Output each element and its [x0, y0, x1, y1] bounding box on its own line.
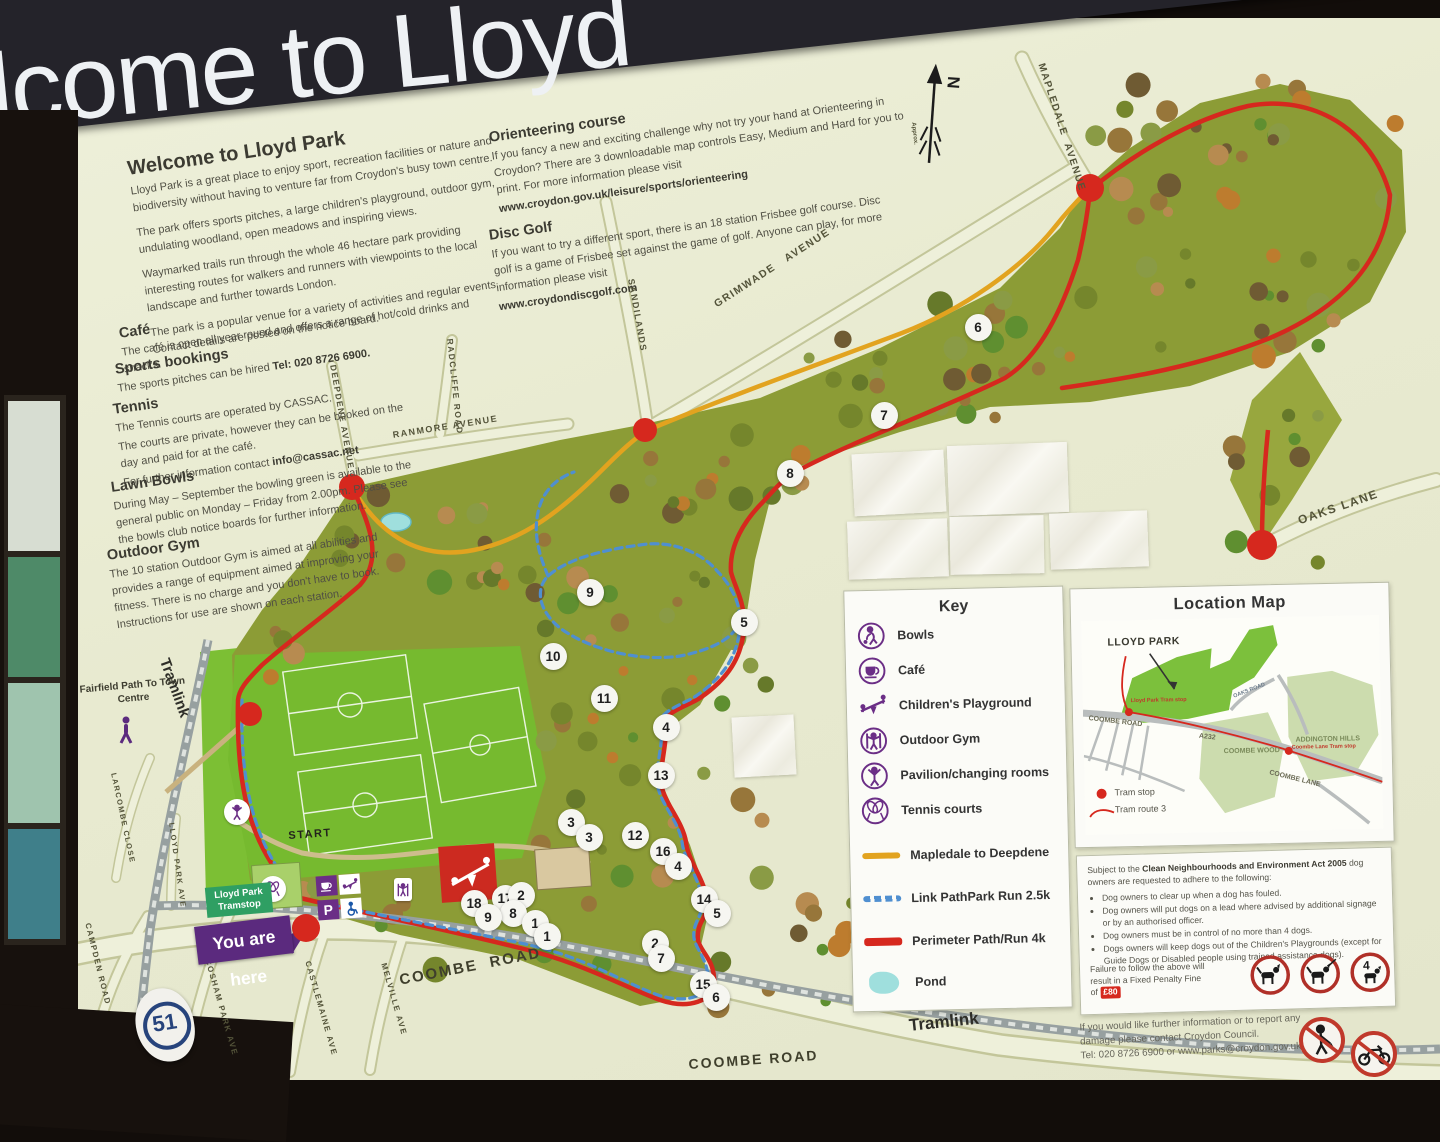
- key-item-pavilion: Pavilion/changing rooms: [848, 754, 1067, 794]
- fine-badge: £80: [1100, 986, 1121, 998]
- four-dogs-icon: 4: [1348, 950, 1393, 995]
- station-marker: 8: [777, 460, 804, 487]
- station-marker: 1: [534, 923, 561, 950]
- key-item-playground: Children's Playground: [846, 684, 1065, 724]
- label-north: N: [944, 76, 965, 90]
- dog-fine-text: Failure to follow the above will result …: [1090, 961, 1211, 999]
- location-map-title: Location Map: [1071, 591, 1389, 617]
- dog-sign-icons: 4: [1248, 950, 1393, 998]
- gym-icon: [859, 726, 890, 755]
- cafe-map-icon: [316, 875, 338, 896]
- dog-lead-icon: [1298, 951, 1343, 996]
- key-item-pond: Pond: [853, 960, 1072, 1000]
- no-motorcycles-icon: [1347, 1027, 1402, 1082]
- tennis-icon: [861, 796, 892, 825]
- station-marker: 10: [540, 643, 567, 670]
- key-item-gym: Outdoor Gym: [847, 719, 1066, 759]
- station-marker: 9: [577, 579, 604, 606]
- no-golf-icon: [1295, 1013, 1350, 1068]
- worn-patch: [1049, 510, 1149, 569]
- station-marker: 13: [648, 762, 675, 789]
- station-marker: 4: [665, 853, 692, 880]
- key-box: Key Bowls Café Children's Playground: [843, 586, 1073, 1013]
- key-item-tennis: Tennis courts: [849, 789, 1068, 829]
- station-marker: 7: [648, 945, 675, 972]
- sign-frame: [0, 110, 78, 1080]
- location-map-box: Location Map LLOYD PARK COOMBE ROAD A232…: [1069, 582, 1394, 849]
- loc-legend-route: Tram route 3: [1115, 803, 1166, 814]
- station-marker: 9: [475, 904, 502, 931]
- loc-label-addington: ADDINGTON HILLS: [1295, 735, 1360, 743]
- station-marker: 5: [704, 900, 731, 927]
- loc-legend-stop: Tram stop: [1114, 787, 1154, 798]
- playground-icon: [859, 691, 890, 720]
- worn-patch: [950, 515, 1045, 575]
- station-marker: 5: [731, 609, 758, 636]
- key-item-bowls: Bowls: [845, 614, 1064, 654]
- worn-patch: [947, 442, 1069, 516]
- station-marker: 12: [622, 822, 649, 849]
- station-marker: 3: [576, 824, 603, 851]
- bowls-icon: [857, 621, 888, 650]
- loc-label-coombe-wood: COOMBE WOOD: [1222, 747, 1282, 755]
- station-marker: 6: [703, 984, 730, 1011]
- blue-route-swatch: [863, 895, 901, 902]
- station-marker: 6: [965, 314, 992, 341]
- loc-label-lloyd-park: LLOYD PARK: [1107, 635, 1180, 649]
- key-route-perimeter: Perimeter Path/Run 4k: [852, 919, 1071, 959]
- key-route-mapledale: Mapledale to Deepdene: [850, 834, 1069, 874]
- dog-notice-box: Subject to the Clean Neighbourhoods and …: [1076, 847, 1396, 1016]
- key-route-linkpath: Link PathPark Run 2.5k: [851, 877, 1070, 917]
- pavilion-map-icon: [224, 799, 250, 825]
- station-marker: 7: [871, 402, 898, 429]
- gym-map-icon: [394, 878, 412, 901]
- key-item-cafe: Café: [846, 649, 1065, 689]
- disabled-map-icon: [340, 897, 362, 918]
- pavilion-icon: [860, 761, 891, 790]
- side-notice-board: [4, 395, 66, 945]
- tram-route-swatch: [1089, 806, 1115, 819]
- parking-map-icon: P: [317, 899, 339, 920]
- worn-patch: [851, 450, 946, 517]
- orange-route-swatch: [862, 852, 900, 859]
- station-marker: 11: [591, 685, 618, 712]
- dog-fouling-icon: [1248, 952, 1293, 997]
- facilities-map-icons: P: [314, 872, 363, 921]
- worn-patch: [847, 518, 949, 579]
- tramstop-tag: Lloyd Park Tramstop: [205, 882, 273, 917]
- pond-swatch: [869, 971, 899, 994]
- station-marker: 4: [653, 714, 680, 741]
- red-route-swatch: [864, 937, 902, 946]
- worn-patch: [731, 714, 796, 777]
- playground-map-icon: [338, 874, 360, 895]
- svg-text:4: 4: [1363, 958, 1370, 972]
- loc-label-lloyd-tram: Lloyd Park Tram stop: [1131, 697, 1187, 704]
- cafe-icon: [858, 656, 889, 685]
